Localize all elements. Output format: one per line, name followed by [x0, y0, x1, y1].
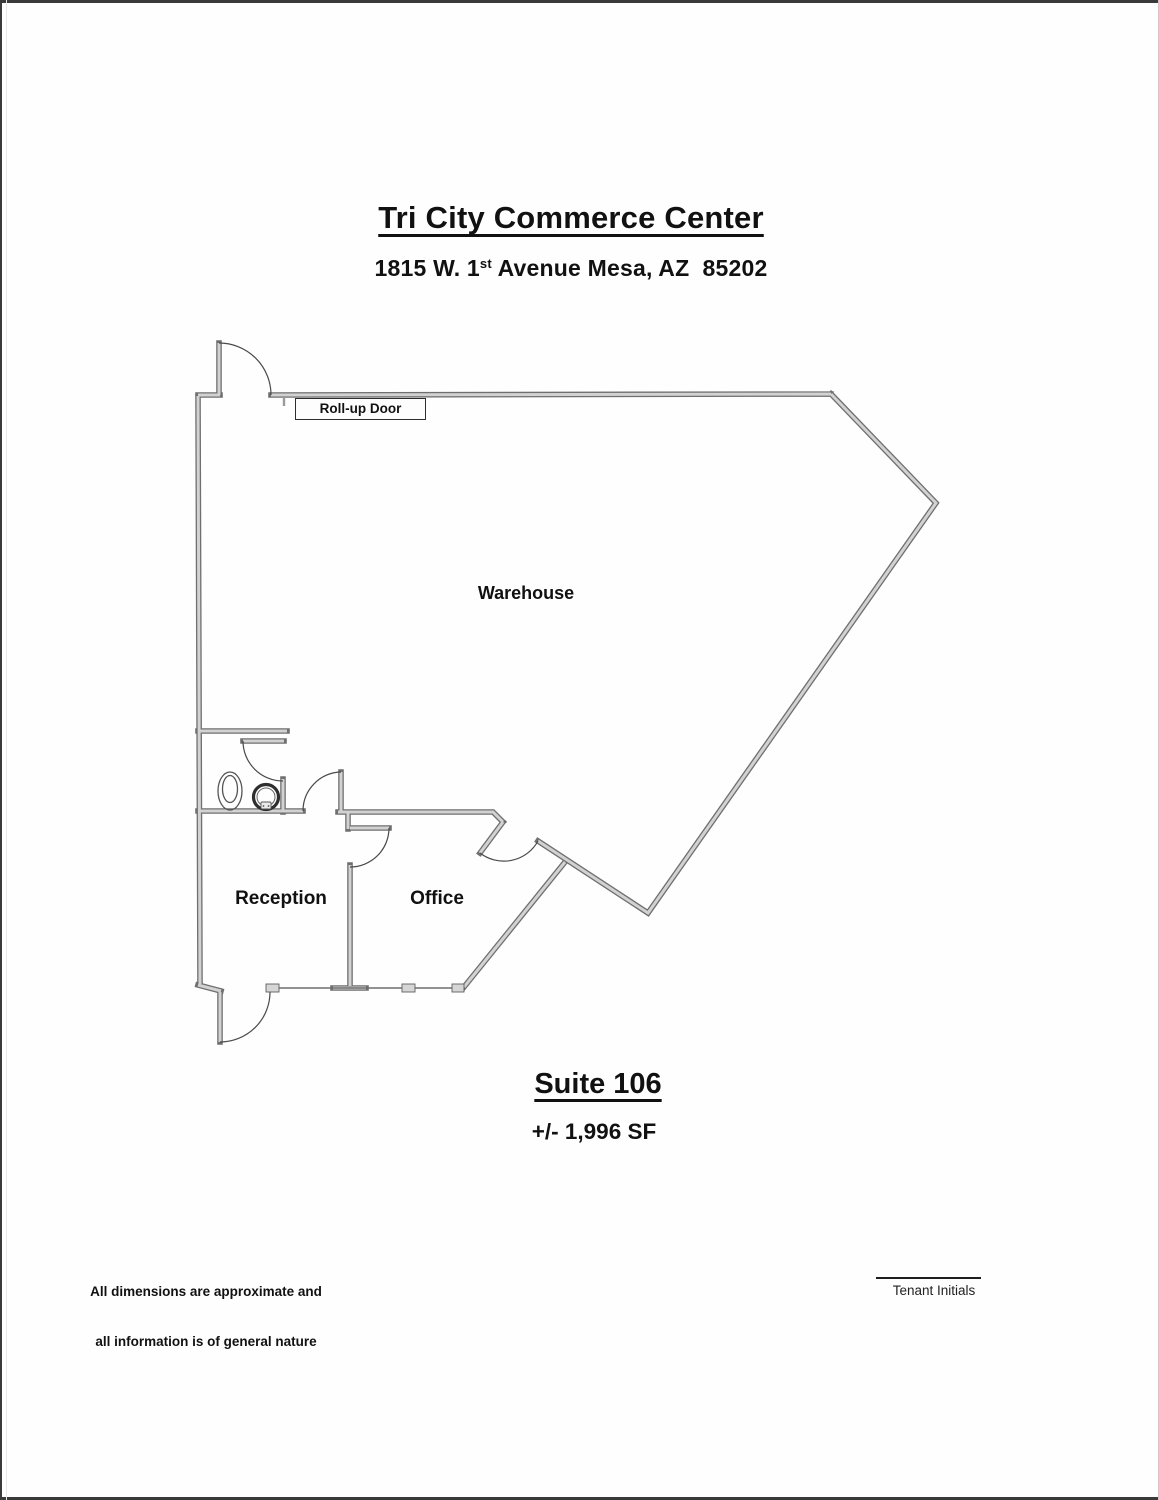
floor-plan-document: { "page": { "title": "Tri City Commerce …	[0, 0, 1159, 1500]
disclaimer-line-2: all information is of general nature	[90, 1334, 322, 1351]
reception-warehouse-door-arc	[303, 772, 341, 811]
window-mullion-icon	[452, 984, 464, 992]
warehouse-label: Warehouse	[478, 583, 574, 604]
rollup-door-label: Roll-up Door	[320, 401, 402, 416]
office-label: Office	[410, 888, 464, 910]
reception-label: Reception	[235, 888, 327, 910]
sink-icon	[254, 785, 279, 810]
door-swing-arcs	[219, 343, 538, 1042]
tenant-initials-label: Tenant Initials	[893, 1283, 976, 1298]
window-mullion-icon	[402, 984, 415, 992]
disclaimer-line-1: All dimensions are approximate and	[90, 1284, 322, 1301]
warehouse-entry-door-arc	[219, 343, 271, 395]
rollup-door-label-box: Roll-up Door	[295, 398, 426, 420]
suite-title: Suite 106	[534, 1068, 661, 1101]
tenant-initials-line	[876, 1277, 981, 1279]
front-entry-door-arc	[220, 992, 270, 1042]
disclaimer-text: All dimensions are approximate and all i…	[90, 1251, 322, 1367]
restroom-door-arc	[243, 741, 283, 781]
toilet-icon	[218, 772, 242, 810]
office-door-arc	[350, 828, 389, 867]
walls	[198, 343, 936, 1042]
suite-area: +/- 1,996 SF	[532, 1119, 656, 1145]
window-mullion-icon	[266, 984, 279, 992]
